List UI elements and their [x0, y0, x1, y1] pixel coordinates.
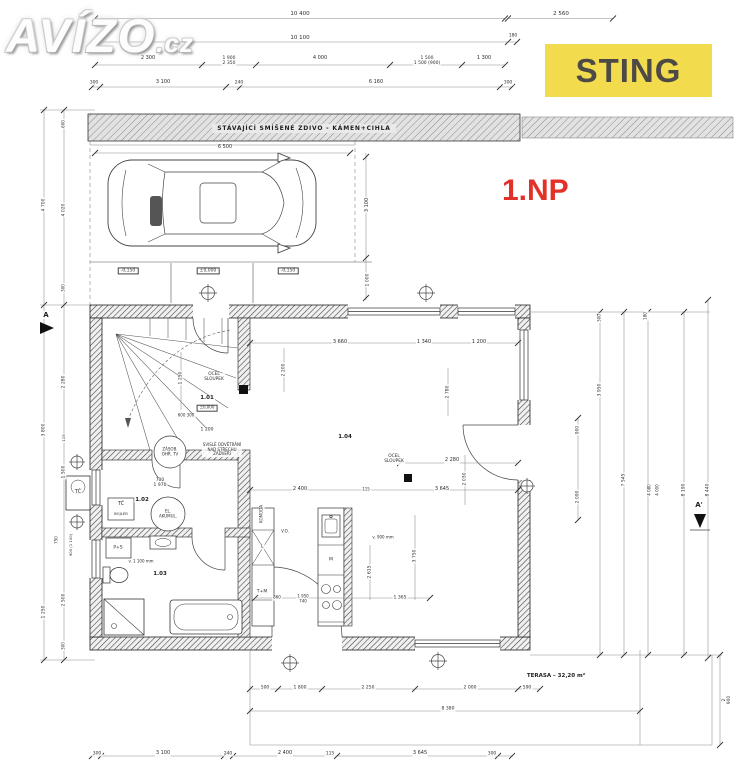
sting-logo-badge: STING	[545, 44, 712, 97]
section-markers	[40, 322, 710, 530]
sting-logo-text: STING	[576, 52, 682, 90]
floor-plan-page: 10 4002 56010 1001802 3001 900 2 3504 00…	[0, 0, 736, 768]
windows	[92, 308, 528, 647]
watermark-text: AVÍZO	[6, 9, 156, 62]
avizo-watermark: AVÍZO.cz	[6, 8, 194, 63]
floor-level-label: 1.NP	[502, 174, 569, 208]
staircase	[116, 318, 238, 450]
wall-openings	[89, 304, 531, 651]
bathroom-fixtures	[103, 536, 242, 635]
car-drawing	[108, 153, 316, 253]
kitchen-unit	[318, 508, 352, 626]
existing-wall-note: STÁVAJÍCÍ SMÍŠENÉ ZDIVO - KÁMEN+CIHLA	[88, 115, 520, 141]
watermark-tld: .cz	[156, 28, 194, 58]
existing-wall-note-text: STÁVAJÍCÍ SMÍŠENÉ ZDIVO - KÁMEN+CIHLA	[212, 124, 395, 133]
terrace-area-label: TERASA – 32,20 m²	[527, 673, 585, 679]
steel-columns	[239, 385, 412, 482]
wardrobe-unit	[252, 508, 274, 626]
